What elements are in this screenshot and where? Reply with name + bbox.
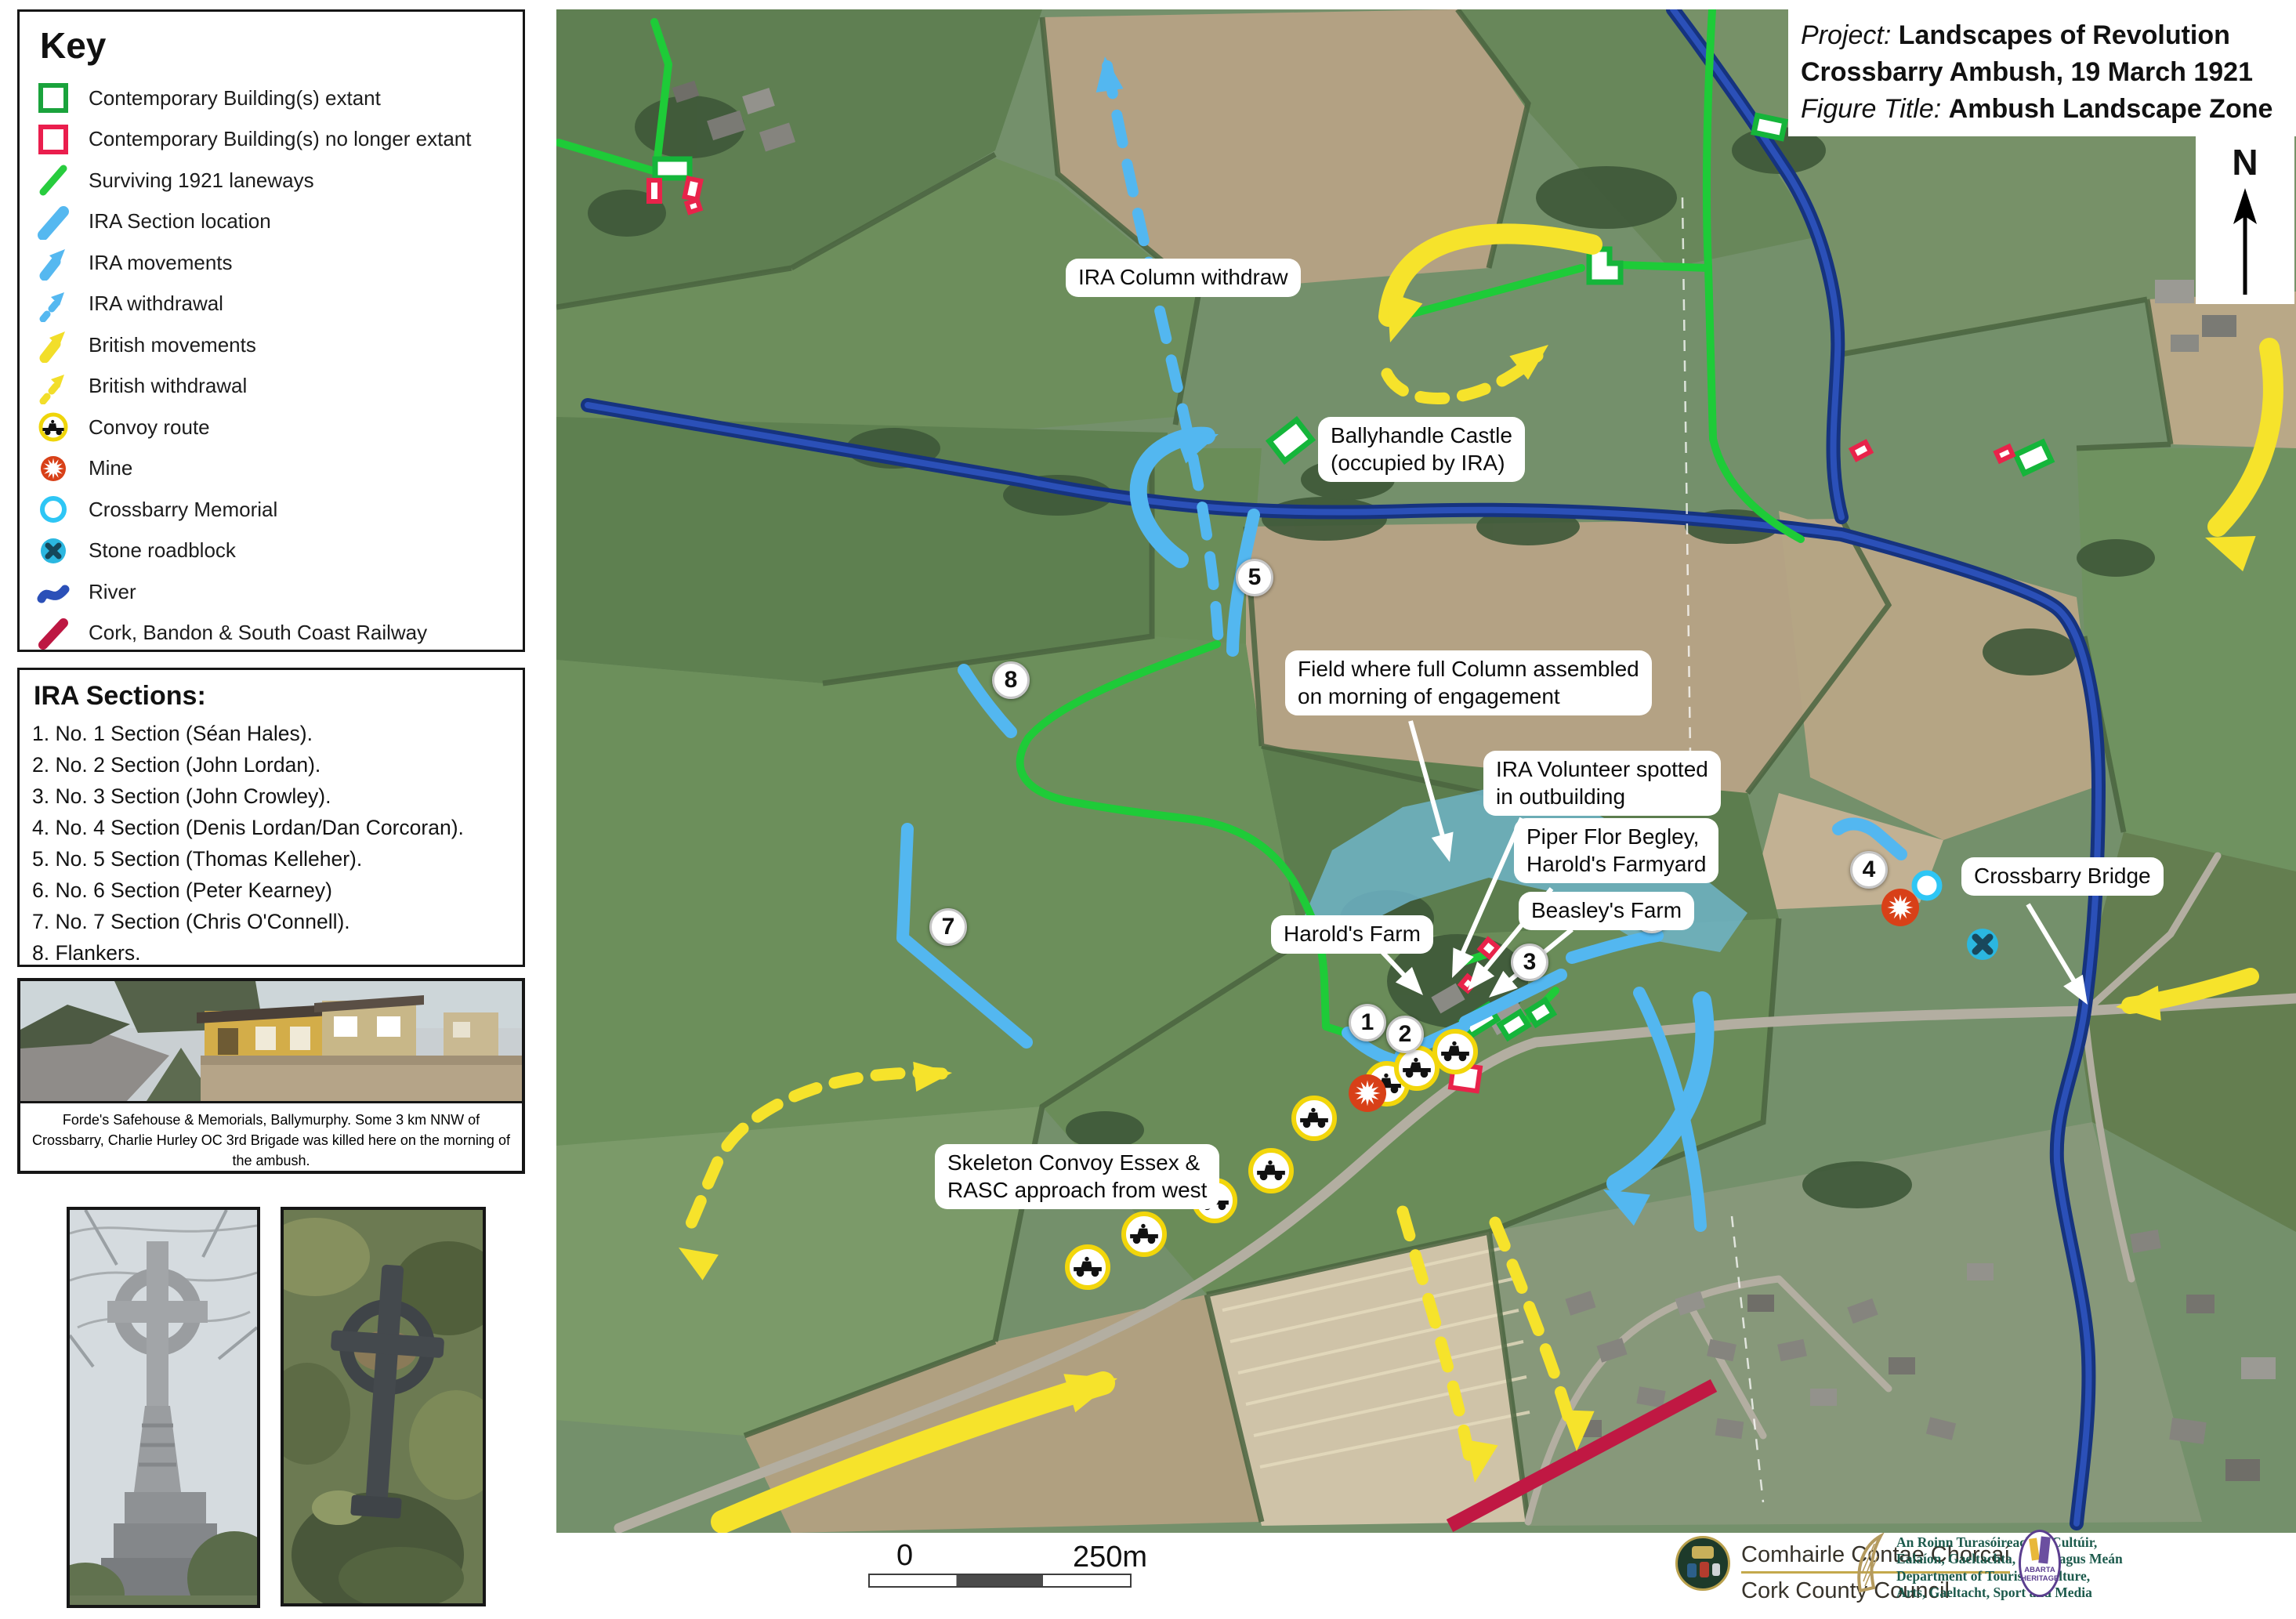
section-marker-4: 4: [1850, 851, 1888, 889]
department-wordmark: An Roinn Turasóireachta, Cultúir, Ealaío…: [1896, 1534, 2123, 1601]
figure-title: Ambush Landscape Zone: [1949, 94, 2273, 124]
project-line: Project: Landscapes of Revolution: [1801, 17, 2283, 54]
stone-roadblock-marker: [1967, 929, 1998, 960]
safehouse-photo-caption: Forde's Safehouse & Memorials, Ballymurp…: [20, 1101, 522, 1171]
photo-memorial-cross: [67, 1207, 260, 1608]
north-label: N: [2196, 141, 2294, 183]
callout-beasleys-farm: Beasley's Farm: [1519, 892, 1694, 930]
ira-section-entry: 7. No. 7 Section (Chris O'Connell).: [32, 906, 510, 937]
crossbarry-memorial-marker: [1914, 873, 1939, 898]
legend-item-ira-movements: IRA movements: [34, 242, 509, 284]
section-marker-3: 3: [1511, 944, 1548, 981]
map-canvas: Project: Landscapes of Revolution Crossb…: [556, 9, 2296, 1533]
photo-fordes-safehouse: Forde's Safehouse & Memorials, Ballymurp…: [17, 978, 525, 1174]
legend-item-british-withdrawal: British withdrawal: [34, 366, 509, 407]
safehouse-photo-image: [20, 981, 522, 1114]
map-title-block: Project: Landscapes of Revolution Crossb…: [1788, 9, 2296, 136]
section-marker-5: 5: [1236, 559, 1273, 596]
roadblock-icon: [34, 533, 73, 569]
blue-arrow-icon: [34, 244, 73, 281]
callout-piper-begley: Piper Flor Begley, Harold's Farmyard: [1514, 818, 1718, 883]
memorial-cross-image: [70, 1210, 257, 1605]
green-square-icon: [34, 80, 73, 116]
key-title: Key: [40, 24, 509, 67]
ira-sections-title: IRA Sections:: [34, 681, 510, 712]
legend-item-building-extant: Contemporary Building(s) extant: [34, 78, 509, 119]
aerial-map-image: [556, 9, 2296, 1533]
callout-convoy-approach: Skeleton Convoy Essex & RASC approach fr…: [935, 1144, 1219, 1209]
irish-harp-icon: [1854, 1533, 1890, 1595]
section-marker-2: 2: [1386, 1016, 1424, 1053]
railway-icon: [34, 615, 73, 651]
north-arrow-icon: [2196, 183, 2294, 301]
legend-item-ira-withdrawal: IRA withdrawal: [34, 284, 509, 325]
project-title: Landscapes of Revolution: [1899, 20, 2230, 50]
cork-county-council-crest-icon: [1675, 1536, 1730, 1591]
scale-end-label: 250m: [1073, 1541, 1147, 1574]
mine-icon: [34, 451, 73, 487]
project-label: Project:: [1801, 20, 1891, 50]
legend-item-roadblock: Stone roadblock: [34, 531, 509, 572]
callout-harolds-farm: Harold's Farm: [1271, 915, 1433, 954]
ira-section-entry: 2. No. 2 Section (John Lordan).: [32, 749, 510, 781]
key-legend-panel: Key Contemporary Building(s) extant Cont…: [17, 9, 525, 652]
ira-section-entry: 3. No. 3 Section (John Crowley).: [32, 781, 510, 812]
scale-bar-graphic: [868, 1574, 1132, 1588]
ira-section-entry: 6. No. 6 Section (Peter Kearney): [32, 875, 510, 906]
legend-item-building-gone: Contemporary Building(s) no longer extan…: [34, 119, 509, 161]
abarta-heritage-wordmark: ABARTA HERITAGE: [2021, 1566, 2059, 1584]
legend-item-mine: Mine: [34, 448, 509, 490]
legend-item-british-movements: British movements: [34, 324, 509, 366]
ira-section-entry: 8. Flankers.: [32, 937, 510, 969]
callout-volunteer-spotted: IRA Volunteer spotted in outbuilding: [1483, 751, 1721, 816]
section-marker-7: 7: [929, 908, 967, 946]
photo-iron-cross: [281, 1207, 486, 1606]
memorial-icon: [34, 491, 73, 527]
legend-item-railway: Cork, Bandon & South Coast Railway: [34, 613, 509, 654]
scale-start-label: 0: [896, 1539, 913, 1573]
section-marker-1: 1: [1349, 1004, 1386, 1041]
blue-line-icon: [34, 204, 73, 240]
figure-title-line: Figure Title: Ambush Landscape Zone: [1801, 91, 2283, 128]
convoy-icon: [34, 409, 73, 445]
section-marker-8: 8: [992, 661, 1030, 699]
red-square-icon: [34, 121, 73, 158]
iron-cross-image: [284, 1210, 483, 1603]
callout-assembly-field: Field where full Column assembled on mor…: [1285, 650, 1652, 715]
river-icon: [34, 574, 73, 610]
green-line-icon: [34, 162, 73, 198]
legend-item-ira-section: IRA Section location: [34, 201, 509, 243]
callout-ira-column-withdraw: IRA Column withdraw: [1066, 259, 1301, 297]
callout-ballyhandle-castle: Ballyhandle Castle (occupied by IRA): [1318, 417, 1525, 482]
ira-section-entry: 4. No. 4 Section (Denis Lordan/Dan Corco…: [32, 812, 510, 843]
figure-title-label: Figure Title:: [1801, 94, 1941, 124]
yellow-dashed-arrow-icon: [34, 368, 73, 404]
map-subtitle: Crossbarry Ambush, 19 March 1921: [1801, 54, 2283, 91]
blue-dashed-arrow-icon: [34, 286, 73, 322]
abarta-heritage-logo: ABARTA HERITAGE: [2019, 1530, 2061, 1597]
ira-section-entry: 5. No. 5 Section (Thomas Kelleher).: [32, 843, 510, 875]
callout-crossbarry-bridge: Crossbarry Bridge: [1961, 857, 2164, 896]
scale-bar: 0 250m: [868, 1539, 1130, 1594]
ira-section-entry: 1. No. 1 Section (Séan Hales).: [32, 718, 510, 749]
north-indicator: N: [2196, 136, 2294, 304]
legend-item-memorial: Crossbarry Memorial: [34, 489, 509, 531]
legend-item-convoy-route: Convoy route: [34, 407, 509, 448]
figure-page: Key Contemporary Building(s) extant Cont…: [0, 0, 2296, 1619]
yellow-arrow-icon: [34, 327, 73, 363]
ira-sections-panel: IRA Sections: 1. No. 1 Section (Séan Hal…: [17, 668, 525, 967]
legend-item-laneways: Surviving 1921 laneways: [34, 160, 509, 201]
legend-item-river: River: [34, 571, 509, 613]
